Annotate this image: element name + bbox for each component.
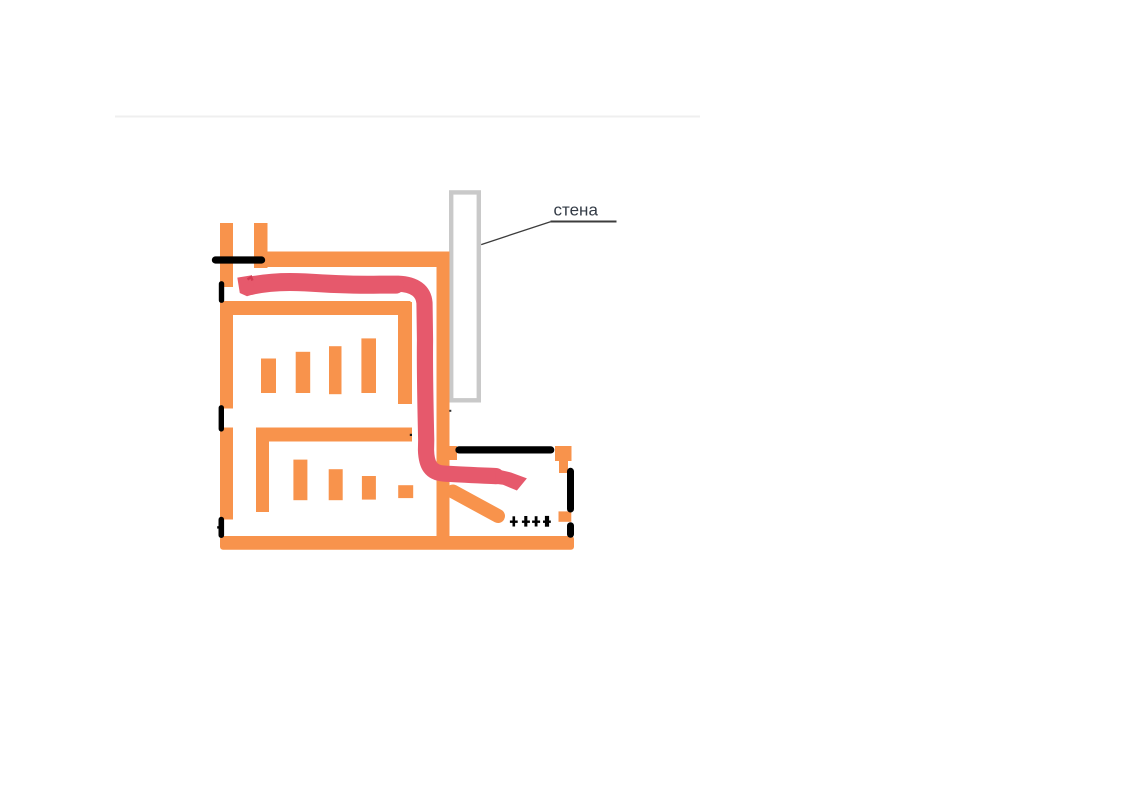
- svg-text:стена: стена: [554, 201, 599, 220]
